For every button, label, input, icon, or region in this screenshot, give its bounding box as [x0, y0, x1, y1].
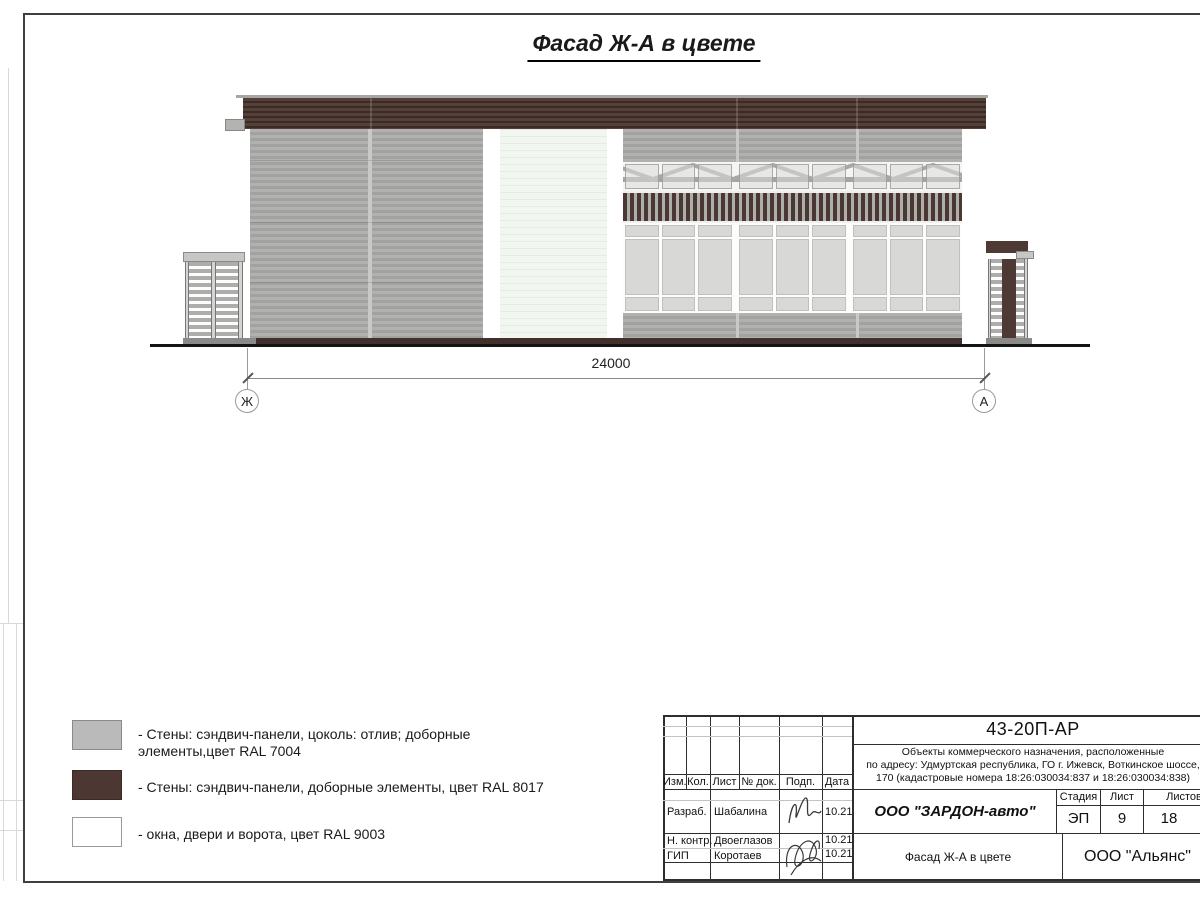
panel-joint [856, 98, 858, 129]
window-pane [739, 225, 773, 237]
margin-line [8, 68, 9, 623]
facade-pillar-right [962, 98, 988, 344]
stage-header: Стадия [1057, 791, 1100, 803]
margin-line [0, 830, 23, 831]
curtain-wall [623, 223, 962, 313]
sheet-header: Лист [1101, 791, 1143, 803]
ground-line [150, 344, 1090, 347]
signature-scribble [781, 791, 823, 879]
project-address-line1: Объекты коммерческого назначения, распол… [854, 746, 1200, 759]
legend-swatch-gray [72, 720, 122, 750]
margin-line [0, 623, 23, 624]
window-pane [776, 297, 810, 311]
curtain-wall-column [739, 225, 773, 311]
window-pane [625, 225, 659, 237]
window-pane [890, 164, 924, 189]
stage-value: ЭП [1057, 810, 1100, 827]
window-pane [776, 164, 810, 189]
col-header-izm: Изм. [663, 776, 686, 788]
margin-line [0, 800, 23, 801]
window-pane [776, 225, 810, 237]
col-header-kol: Кол. [686, 776, 710, 788]
frame-top-line [23, 13, 1200, 15]
row-name: Двоеглазов [714, 835, 772, 847]
louver-band [623, 191, 962, 223]
window-pane [625, 297, 659, 311]
extension-line-left [247, 348, 248, 390]
extension-line-right [984, 348, 985, 390]
titleblock-line [663, 800, 852, 801]
facade-pillar-mid-right [607, 98, 623, 344]
titleblock-line [854, 744, 1200, 745]
axis-marker-a: А [972, 389, 996, 413]
window-pane [662, 297, 696, 311]
window-pane [853, 297, 887, 311]
org-name: ООО "Альянс" [1063, 848, 1200, 866]
row-date: 10.21 [825, 806, 853, 818]
titleblock-line [663, 726, 852, 727]
window-pane [853, 164, 887, 189]
titleblock-line [663, 789, 1200, 790]
window-pane [698, 225, 732, 237]
titleblock-line [1056, 805, 1200, 806]
window-pane [739, 239, 773, 295]
dimension-value: 24000 [571, 355, 651, 371]
titleblock-line [663, 848, 852, 849]
window-pane [812, 239, 846, 295]
window-pane [853, 239, 887, 295]
facade-wall-left-gray [250, 129, 483, 338]
window-pane [698, 164, 732, 189]
sheets-total: 18 [1144, 810, 1194, 827]
col-header-data: Дата [822, 776, 852, 788]
louver-post [238, 262, 243, 338]
dimension-line [247, 378, 985, 379]
titleblock-line [663, 736, 852, 737]
facade-upper-band-right [623, 129, 962, 162]
row-name: Коротаев [714, 850, 762, 862]
window-pane [926, 239, 960, 295]
page-title: Фасад Ж-А в цвете [527, 30, 760, 62]
doc-number: 43-20П-АР [854, 719, 1200, 740]
curtain-wall-column [890, 225, 924, 311]
titleblock-line [663, 833, 1200, 834]
louver-post [211, 262, 216, 338]
drawing-title: Фасад Ж-А в цвете [854, 850, 1062, 864]
louver-screen-right [988, 259, 1028, 338]
pergola-cap-right [1016, 251, 1034, 259]
col-header-list: Лист [710, 776, 739, 788]
titleblock-line [663, 774, 852, 775]
legend-swatch-brown [72, 770, 122, 800]
window-pane [890, 297, 924, 311]
window-pane [812, 164, 846, 189]
curtain-wall-column [776, 225, 810, 311]
louver-post [988, 259, 991, 338]
curtain-wall-column [698, 225, 732, 311]
legend-label-gray: - Стены: сэндвич-панели, цоколь: отлив; … [138, 726, 508, 760]
window-pane [890, 239, 924, 295]
curtain-wall-column [853, 225, 887, 311]
frame-left-line [23, 13, 25, 883]
row-date: 10.21 [825, 848, 853, 860]
panel-joint [856, 313, 859, 338]
window-pane [662, 164, 696, 189]
titleblock-line [710, 715, 711, 881]
sheet-number: 9 [1101, 810, 1143, 827]
drawing-sheet: Фасад Ж-А в цвете [0, 0, 1200, 900]
project-address-line2: по адресу: Удмуртская республика, ГО г. … [854, 759, 1200, 772]
panel-joint [856, 129, 859, 162]
margin-line [16, 623, 17, 881]
margin-line [3, 623, 4, 881]
window-pane [926, 164, 960, 189]
window-pane [926, 297, 960, 311]
curtain-wall-column [812, 225, 846, 311]
facade-gate-white [500, 129, 607, 338]
legend-label-white: - окна, двери и ворота, цвет RAL 9003 [138, 826, 588, 843]
window-pane [698, 239, 732, 295]
window-pane [853, 225, 887, 237]
panel-joint [370, 98, 372, 129]
window-pane [890, 225, 924, 237]
panel-joint [736, 129, 739, 162]
legend-swatch-white [72, 817, 122, 847]
clerestory-window-row [623, 162, 962, 191]
window-pane [812, 297, 846, 311]
row-role: ГИП [667, 850, 689, 862]
panel-joint [250, 222, 483, 223]
titleblock-line [663, 862, 852, 863]
louver-post [1024, 259, 1028, 338]
legend-label-brown: - Стены: сэндвич-панели, доборные элемен… [138, 779, 588, 796]
curtain-wall-column [662, 225, 696, 311]
curtain-wall-column [926, 225, 960, 311]
window-pane [776, 239, 810, 295]
axis-marker-zh: Ж [235, 389, 259, 413]
window-pane [625, 239, 659, 295]
panel-joint [250, 160, 483, 161]
pergola-cap-left [183, 252, 245, 262]
row-role: Н. контр. [667, 835, 712, 847]
window-pane [662, 239, 696, 295]
col-header-doc: № док. [739, 776, 779, 788]
frame-bottom-line [23, 881, 1200, 883]
louver-post-brown [1002, 259, 1016, 338]
panel-joint [736, 98, 738, 129]
panel-joint [736, 313, 739, 338]
titleblock-line [779, 715, 780, 881]
facade-pillar-mid-left [483, 98, 500, 344]
window-pane [926, 225, 960, 237]
titleblock-border [663, 715, 665, 881]
facade-base-band-right [623, 313, 962, 338]
col-header-podp: Подп. [779, 776, 822, 788]
window-pane [698, 297, 732, 311]
developer-name: ООО "ЗАРДОН-авто" [854, 803, 1056, 820]
titleblock-border [663, 715, 1200, 717]
row-role: Разраб. [667, 806, 707, 818]
window-pane [662, 225, 696, 237]
window-pane [625, 164, 659, 189]
panel-joint [250, 282, 483, 283]
curtain-wall-column [625, 225, 659, 311]
louver-screen-left [185, 262, 243, 338]
titleblock-border [663, 879, 1200, 881]
window-pane [739, 164, 773, 189]
project-address-line3: 170 (кадастровые номера 18:26:030034:837… [854, 772, 1200, 785]
window-pane [739, 297, 773, 311]
window-pane [812, 225, 846, 237]
row-date: 10.21 [825, 834, 853, 846]
louver-post [185, 262, 189, 338]
row-name: Шабалина [714, 806, 767, 818]
facade-canopy-left [225, 119, 245, 131]
sheets-header: Листов [1144, 791, 1200, 803]
